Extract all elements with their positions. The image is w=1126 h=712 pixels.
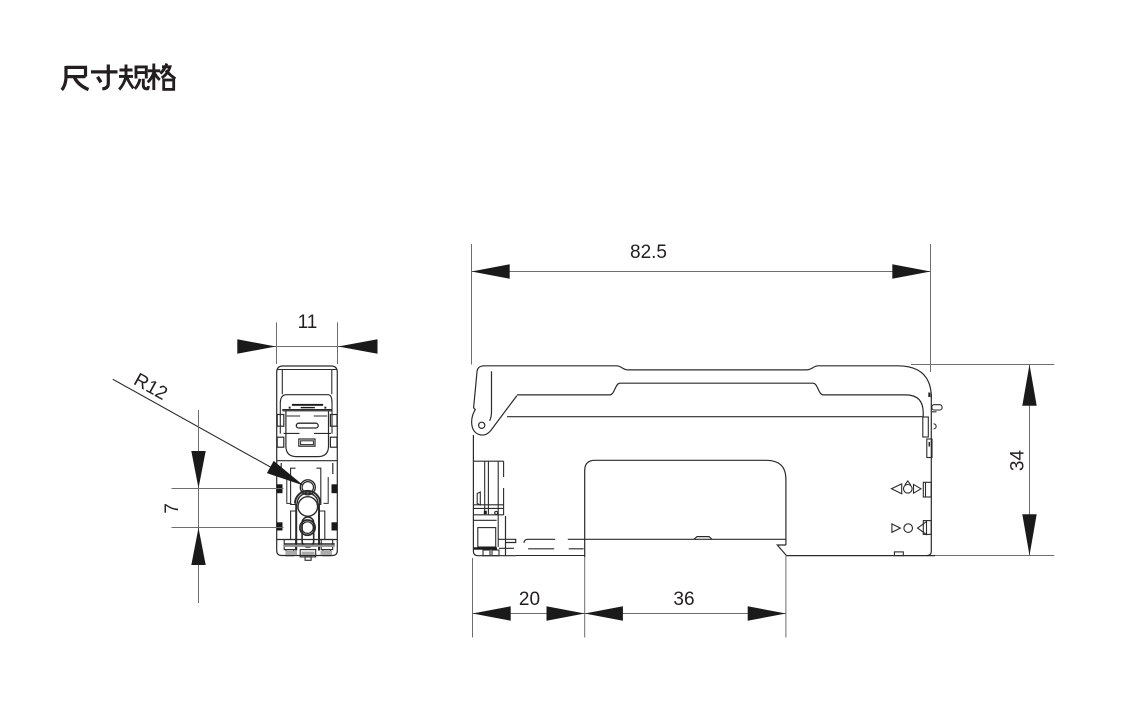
svg-text:34: 34 [1008, 450, 1029, 472]
svg-text:11: 11 [298, 312, 318, 333]
svg-text:R12: R12 [130, 370, 171, 405]
svg-text:7: 7 [162, 503, 183, 514]
svg-text:36: 36 [673, 589, 694, 610]
svg-text:20: 20 [519, 589, 540, 610]
svg-text:82.5: 82.5 [630, 242, 667, 263]
